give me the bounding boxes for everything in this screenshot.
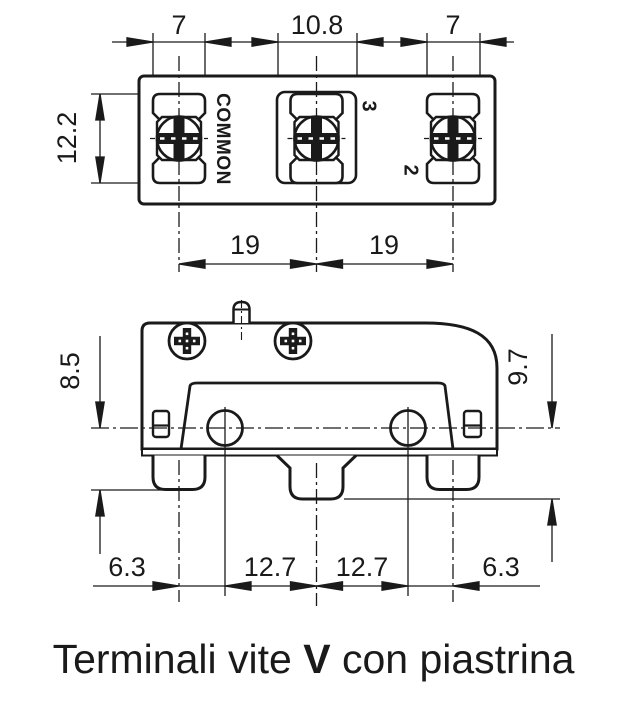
terminal-2-label: 2 bbox=[400, 164, 422, 175]
dim-pitch-right: 19 bbox=[369, 230, 399, 260]
dim-width-center: 10.8 bbox=[291, 10, 344, 40]
dim-bottom-pitch-right: 12.7 bbox=[336, 552, 389, 582]
dim-bottom-pitch-left: 12.7 bbox=[244, 552, 297, 582]
caption: Terminali vite V con piastrina bbox=[0, 636, 627, 683]
terminal-3-label: 3 bbox=[358, 100, 380, 111]
top-view: COMMON 3 2 bbox=[139, 56, 495, 272]
terminal-common-label: COMMON bbox=[212, 93, 233, 185]
slot-right bbox=[464, 411, 481, 437]
dim-width-right: 7 bbox=[445, 10, 460, 40]
dim-pitch-left: 19 bbox=[230, 230, 260, 260]
caption-suffix: con piastrina bbox=[331, 636, 575, 682]
switch-terminal-drawing: COMMON 3 2 7 10.8 7 12.2 bbox=[0, 0, 627, 620]
technical-drawing-page: COMMON 3 2 7 10.8 7 12.2 bbox=[0, 0, 627, 707]
phillips-screw-icon bbox=[169, 323, 205, 359]
phillips-screw-icon bbox=[275, 323, 311, 359]
dim-bottom-offset-left: 6.3 bbox=[108, 552, 146, 582]
dim-terminal-height: 12.2 bbox=[52, 112, 82, 165]
caption-prefix: Terminali vite bbox=[53, 636, 304, 682]
caption-variant-code: V bbox=[303, 636, 330, 682]
dim-bottom-offset-right: 6.3 bbox=[482, 552, 520, 582]
slot-left bbox=[153, 411, 169, 437]
dim-height-left: 8.5 bbox=[55, 352, 85, 390]
dim-height-right: 9.7 bbox=[503, 348, 533, 386]
base-strip bbox=[142, 449, 497, 456]
dim-width-left: 7 bbox=[171, 10, 186, 40]
